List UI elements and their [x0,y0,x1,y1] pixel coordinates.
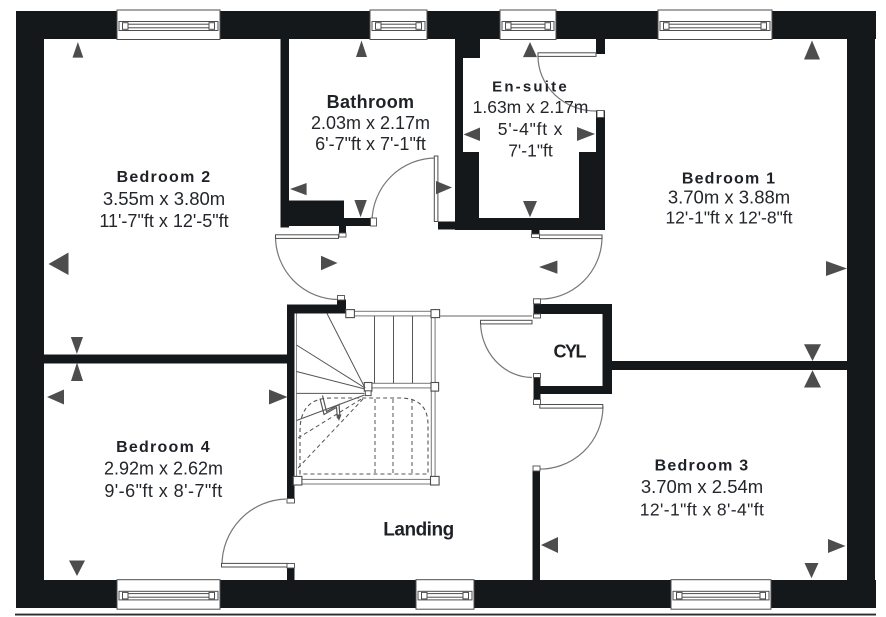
svg-text:1.63m x 2.17m: 1.63m x 2.17m [473,97,589,117]
svg-text:Bedroom 2: Bedroom 2 [117,169,212,186]
svg-text:2.03m x 2.17m: 2.03m x 2.17m [311,113,430,133]
svg-text:12'-1"ft x 12'-8"ft: 12'-1"ft x 12'-8"ft [665,208,792,228]
svg-text:Bedroom 3: Bedroom 3 [655,458,750,475]
svg-text:Bathroom: Bathroom [327,92,415,112]
svg-text:5'-4"ft x: 5'-4"ft x [498,119,563,139]
svg-text:3.55m x 3.80m: 3.55m x 3.80m [103,188,225,209]
svg-text:3.70m x 3.88m: 3.70m x 3.88m [668,187,790,208]
svg-text:3.70m x 2.54m: 3.70m x 2.54m [641,476,763,497]
svg-text:9'-6"ft x 8'-7"ft: 9'-6"ft x 8'-7"ft [104,481,222,501]
svg-text:11'-7"ft x 12'-5"ft: 11'-7"ft x 12'-5"ft [99,211,228,231]
svg-text:6'-7"ft x 7'-1"ft: 6'-7"ft x 7'-1"ft [315,134,426,154]
svg-text:2.92m x 2.62m: 2.92m x 2.62m [104,459,223,479]
svg-text:12'-1"ft x 8'-4"ft: 12'-1"ft x 8'-4"ft [640,500,765,520]
svg-text:En-suite: En-suite [492,79,569,96]
svg-text:Bedroom 1: Bedroom 1 [682,171,776,188]
svg-text:Bedroom 4: Bedroom 4 [116,439,211,456]
svg-text:7'-1"ft: 7'-1"ft [508,141,553,161]
svg-text:CYL: CYL [554,342,587,362]
svg-text:Landing: Landing [383,520,453,541]
